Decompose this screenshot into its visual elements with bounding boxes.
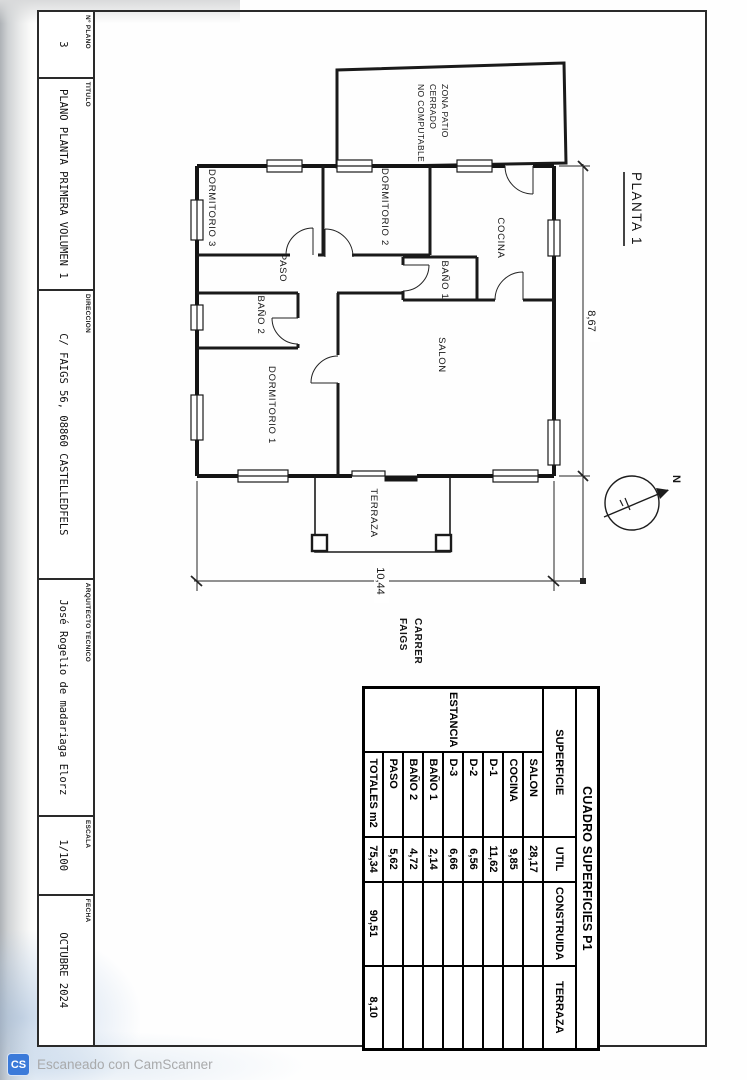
dimension-height-label: 10,44 (374, 567, 386, 595)
terrace-outline (312, 476, 451, 552)
scanned-floorplan-document: Nº PLANO 3 TITULO PLANO PLANTA PRIMERA V… (0, 0, 747, 1080)
header-util: UTIL (543, 837, 576, 882)
row-name: COCINA (503, 752, 523, 837)
row-name: SALON (523, 752, 543, 837)
row-util: 6,56 (463, 837, 483, 882)
totals-util: 75,34 (364, 837, 384, 882)
window-symbols (191, 160, 560, 482)
compass-circle (605, 476, 659, 530)
room-label-bano1: BAÑO 1 (439, 260, 450, 299)
patio-walls (337, 63, 566, 167)
street-label-line2: FAIGS (397, 618, 408, 651)
header-superficie: SUPERFICIE (543, 688, 576, 837)
row-name: D-1 (483, 752, 503, 837)
row-name: D-3 (443, 752, 463, 837)
street-label: CARRER FAIGS (397, 618, 423, 665)
totals-terraza: 8,10 (364, 966, 384, 1050)
header-terraza: TERRAZA (543, 966, 576, 1050)
row-construida-empty (523, 882, 543, 966)
patio-annotation: ZONA PATIO CERRADO NO COMPUTABLE (416, 84, 450, 162)
north-compass: N (604, 475, 682, 530)
room-label-dormitorio1: DORMITORIO 1 (266, 366, 277, 444)
camscanner-badge-icon: CS (7, 1053, 30, 1076)
dimension-lines (191, 161, 590, 591)
room-label-bano2: BAÑO 2 (255, 295, 266, 334)
patio-annotation-line3: NO COMPUTABLE (416, 84, 426, 162)
patio-annotation-line2: CERRADO (428, 84, 438, 129)
north-label: N (670, 475, 682, 483)
exterior-walls (197, 166, 554, 476)
room-label-terraza: TERRAZA (368, 488, 379, 537)
camscanner-watermark-text: Escaneado con CamScanner (37, 1057, 213, 1072)
totals-label: TOTALES m2 (364, 752, 384, 837)
row-util: 2,14 (423, 837, 443, 882)
row-terraza-empty (523, 966, 543, 1050)
room-label-salon: SALON (436, 337, 447, 373)
surfaces-table: CUADRO SUPERFICIES P1 SUPERFICIE UTIL CO… (362, 686, 600, 1051)
row-util: 4,72 (403, 837, 423, 882)
header-construida: CONSTRUIDA (543, 882, 576, 966)
sliding-door-symbol (352, 471, 417, 481)
row-util: 9,85 (503, 837, 523, 882)
sheet-title: PLANTA 1 (629, 172, 644, 246)
totals-construida: 90,51 (364, 882, 384, 966)
room-label-dormitorio2: DORMITORIO 2 (379, 168, 390, 246)
camscanner-watermark: CS Escaneado con CamScanner (7, 1053, 213, 1076)
room-label-paso: PASO (277, 254, 288, 283)
row-name: BAÑO 2 (403, 752, 423, 837)
interior-walls (197, 166, 554, 476)
row-name: PASO (383, 752, 403, 837)
header-estancia: ESTANCIA (364, 688, 544, 752)
row-util: 5,62 (383, 837, 403, 882)
dimension-corner-tick (580, 578, 586, 584)
row-name: BAÑO 1 (423, 752, 443, 837)
row-util: 28,17 (523, 837, 543, 882)
street-label-line1: CARRER (412, 618, 423, 665)
room-label-cocina: COCINA (495, 217, 506, 258)
surfaces-table-title: CUADRO SUPERFICIES P1 (576, 688, 599, 1050)
door-swings (272, 166, 533, 383)
drawing-sheet-rotated: Nº PLANO 3 TITULO PLANO PLANTA PRIMERA V… (0, 0, 747, 1080)
dimension-width-label: 8,67 (585, 310, 597, 331)
row-util: 11,62 (483, 837, 503, 882)
room-label-dormitorio3: DORMITORIO 3 (206, 169, 217, 247)
patio-annotation-line1: ZONA PATIO (440, 84, 450, 138)
row-name: D-2 (463, 752, 483, 837)
row-util: 6,66 (443, 837, 463, 882)
